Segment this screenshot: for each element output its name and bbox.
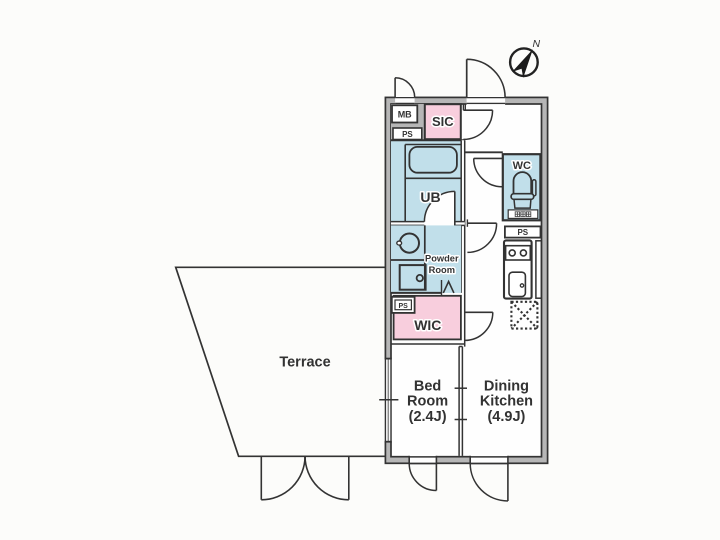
svg-text:WIC: WIC [414, 317, 441, 333]
svg-text:Powder: Powder [425, 254, 459, 264]
svg-text:PS: PS [399, 303, 409, 310]
svg-text:Bed: Bed [414, 378, 441, 394]
svg-text:Terrace: Terrace [279, 354, 330, 370]
svg-text:WC: WC [513, 160, 531, 172]
svg-text:(2.4J): (2.4J) [409, 409, 447, 425]
svg-text:Kitchen: Kitchen [480, 394, 533, 410]
svg-text:N: N [533, 38, 541, 50]
svg-text:PS: PS [402, 130, 413, 139]
svg-text:SIC: SIC [432, 114, 454, 129]
svg-text:UB: UB [420, 189, 440, 205]
svg-text:PS: PS [517, 228, 528, 237]
svg-text:(4.9J): (4.9J) [487, 409, 525, 425]
svg-text:Room: Room [407, 394, 448, 410]
svg-text:Dining: Dining [484, 378, 529, 394]
svg-text:MB: MB [398, 110, 412, 120]
svg-text:Room: Room [429, 265, 455, 275]
